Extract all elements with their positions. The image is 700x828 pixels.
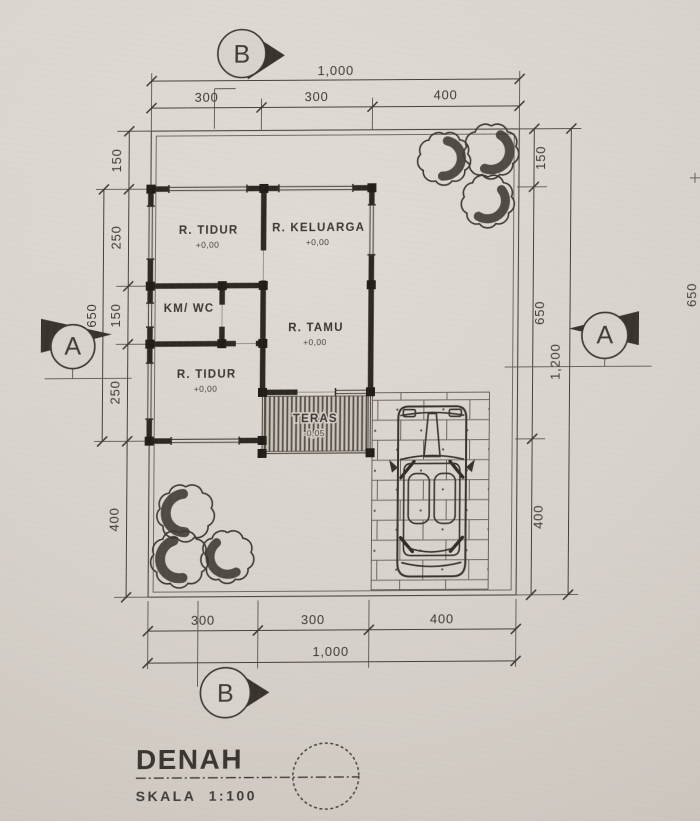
floor-plan-drawing: 1,000 300 300 400 300 300 400 1,000 xyxy=(0,0,700,823)
room-level-tidur1: +0,00 xyxy=(196,240,220,250)
title-block: DENAH SKALA 1:100 xyxy=(136,743,359,810)
dimensions-top: 1,000 300 300 400 xyxy=(146,62,524,131)
room-label-tidur1: R. TIDUR xyxy=(179,225,239,237)
window-tidur1-top xyxy=(169,185,247,193)
window-tamu-bottom xyxy=(335,388,367,396)
carport-paving xyxy=(371,392,489,590)
room-label-keluarga: R. KELUARGA xyxy=(272,222,365,235)
room-level-tamu: +0,00 xyxy=(303,337,327,347)
room-level-tidur2: +0,00 xyxy=(194,384,218,394)
section-letter-a-right: A xyxy=(596,321,613,349)
scanned-photo-background: 1,000 300 300 400 300 300 400 1,000 xyxy=(0,0,700,821)
room-level-keluarga: +0,00 xyxy=(306,237,330,247)
section-letter-b-top: B xyxy=(233,41,250,69)
dim-bottom-seg3: 400 xyxy=(430,611,454,626)
room-label-tidur2: R. TIDUR xyxy=(177,369,237,381)
dim-bottom-seg2: 300 xyxy=(301,612,325,627)
section-letter-a-left: A xyxy=(64,333,81,361)
window-kmwc-left xyxy=(146,303,154,327)
section-marker-a-right: A xyxy=(505,311,652,367)
section-marker-b-top: B xyxy=(214,29,285,128)
scale-label: SKALA xyxy=(136,788,197,804)
trees-bottom-left xyxy=(150,485,254,589)
tree-icon xyxy=(417,132,470,185)
room-label-kmwc: KM/ WC xyxy=(164,303,215,315)
dimensions-left: 150 250 150 250 400 650 xyxy=(82,126,153,602)
dim-right-seg2: 650 xyxy=(532,301,547,325)
dim-right-seg1: 150 xyxy=(533,146,548,170)
room-label-tamu: R. TAMU xyxy=(288,322,344,334)
window-tidur2-bottom xyxy=(171,437,239,445)
edge-plus-mark xyxy=(690,173,700,183)
trees-top-right xyxy=(417,124,519,228)
dim-left-seg4: 250 xyxy=(107,380,122,404)
window-tidur2-left xyxy=(145,363,153,419)
tree-icon xyxy=(201,531,254,584)
section-letter-b-bottom: B xyxy=(217,680,234,708)
dim-top-overall: 1,000 xyxy=(317,63,354,78)
floor-plan-scan: 1,000 300 300 400 300 300 400 1,000 xyxy=(0,0,700,823)
dim-left-seg1: 150 xyxy=(109,148,124,172)
tree-icon xyxy=(461,175,514,228)
dim-right-edge: 650 xyxy=(684,283,699,307)
window-tidur1-left xyxy=(146,206,154,259)
dim-right-overall: 1,200 xyxy=(548,343,563,380)
dim-bottom-seg1: 300 xyxy=(191,613,215,628)
dim-right-seg3: 400 xyxy=(531,505,546,529)
dim-left-seg5: 400 xyxy=(107,507,122,531)
room-label-teras: TERAS xyxy=(293,413,338,425)
title-underline xyxy=(136,777,359,778)
window-keluarga-top xyxy=(279,184,353,192)
dimensions-bottom: 300 300 400 1,000 xyxy=(143,599,521,669)
dim-left-seg3: 150 xyxy=(108,303,123,327)
drawing-title: DENAH xyxy=(136,744,243,776)
tree-icon xyxy=(463,124,519,179)
window-keluarga-right xyxy=(367,205,375,255)
title-reference-circle xyxy=(293,743,359,809)
dimensions-right: 150 650 400 1,200 650 xyxy=(514,123,700,600)
dim-bottom-overall: 1,000 xyxy=(312,644,349,659)
dim-top-seg2: 300 xyxy=(304,89,328,104)
dim-left-house-depth: 650 xyxy=(84,303,99,327)
dim-top-seg3: 400 xyxy=(433,87,457,102)
scale-value: 1:100 xyxy=(209,788,257,804)
room-level-teras: -0,05 xyxy=(303,428,324,438)
dim-left-seg2: 250 xyxy=(109,225,124,249)
